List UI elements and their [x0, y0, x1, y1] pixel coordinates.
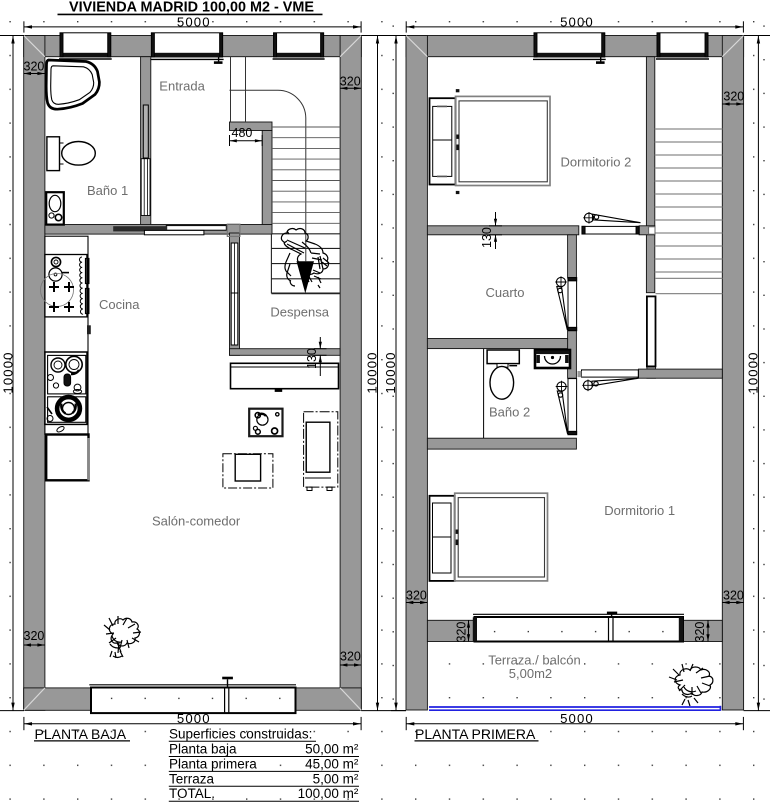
- svg-text:320: 320: [340, 650, 361, 664]
- svg-text:VIVIENDA MADRID 100,00 M2 - V: VIVIENDA MADRID 100,00 M2 - VME: [69, 0, 314, 15]
- svg-text:Planta baja: Planta baja: [169, 742, 237, 757]
- svg-text:PLANTA PRIMERA: PLANTA PRIMERA: [415, 726, 536, 742]
- svg-text:Entrada: Entrada: [159, 79, 205, 94]
- svg-text:320: 320: [406, 589, 427, 603]
- svg-text:Salón-comedor: Salón-comedor: [152, 514, 241, 529]
- svg-text:Baño 2: Baño 2: [489, 405, 530, 420]
- svg-text:TOTAL.: TOTAL.: [169, 786, 215, 801]
- svg-text:130: 130: [480, 227, 494, 248]
- svg-text:130: 130: [305, 348, 319, 369]
- svg-text:320: 320: [693, 622, 707, 643]
- svg-text:320: 320: [340, 75, 361, 89]
- svg-text:5000: 5000: [560, 14, 594, 29]
- svg-text:320: 320: [723, 90, 744, 104]
- svg-text:Terraza: Terraza: [169, 771, 215, 786]
- svg-text:5,00 m²: 5,00 m²: [313, 771, 359, 786]
- svg-text:320: 320: [24, 60, 45, 74]
- svg-text:100,00 m²: 100,00 m²: [298, 786, 359, 801]
- svg-text:320: 320: [455, 622, 469, 643]
- svg-text:Planta primera: Planta primera: [169, 756, 257, 771]
- svg-text:50,00 m²: 50,00 m²: [305, 742, 359, 757]
- svg-text:10000: 10000: [745, 351, 760, 393]
- svg-text:10000: 10000: [0, 351, 15, 393]
- svg-text:Dormitorio 2: Dormitorio 2: [561, 155, 632, 170]
- svg-text:320: 320: [24, 629, 45, 643]
- svg-text:Superficies construidas:: Superficies construidas:: [169, 727, 312, 742]
- svg-text:Cocina: Cocina: [99, 297, 140, 312]
- svg-text:PLANTA BAJA: PLANTA BAJA: [35, 726, 127, 742]
- svg-text:5000: 5000: [560, 711, 594, 726]
- svg-text:45,00 m²: 45,00 m²: [305, 756, 359, 771]
- svg-text:10000: 10000: [383, 351, 398, 393]
- svg-text:Despensa: Despensa: [270, 305, 329, 320]
- svg-text:5,00m2: 5,00m2: [509, 666, 552, 681]
- svg-text:320: 320: [723, 589, 744, 603]
- svg-text:Dormitorio 1: Dormitorio 1: [604, 503, 675, 518]
- svg-text:480: 480: [232, 126, 253, 140]
- svg-text:5000: 5000: [177, 14, 211, 29]
- svg-text:10000: 10000: [364, 351, 379, 393]
- svg-text:5000: 5000: [177, 711, 211, 726]
- svg-text:Cuarto: Cuarto: [486, 285, 525, 300]
- svg-text:Baño 1: Baño 1: [87, 183, 128, 198]
